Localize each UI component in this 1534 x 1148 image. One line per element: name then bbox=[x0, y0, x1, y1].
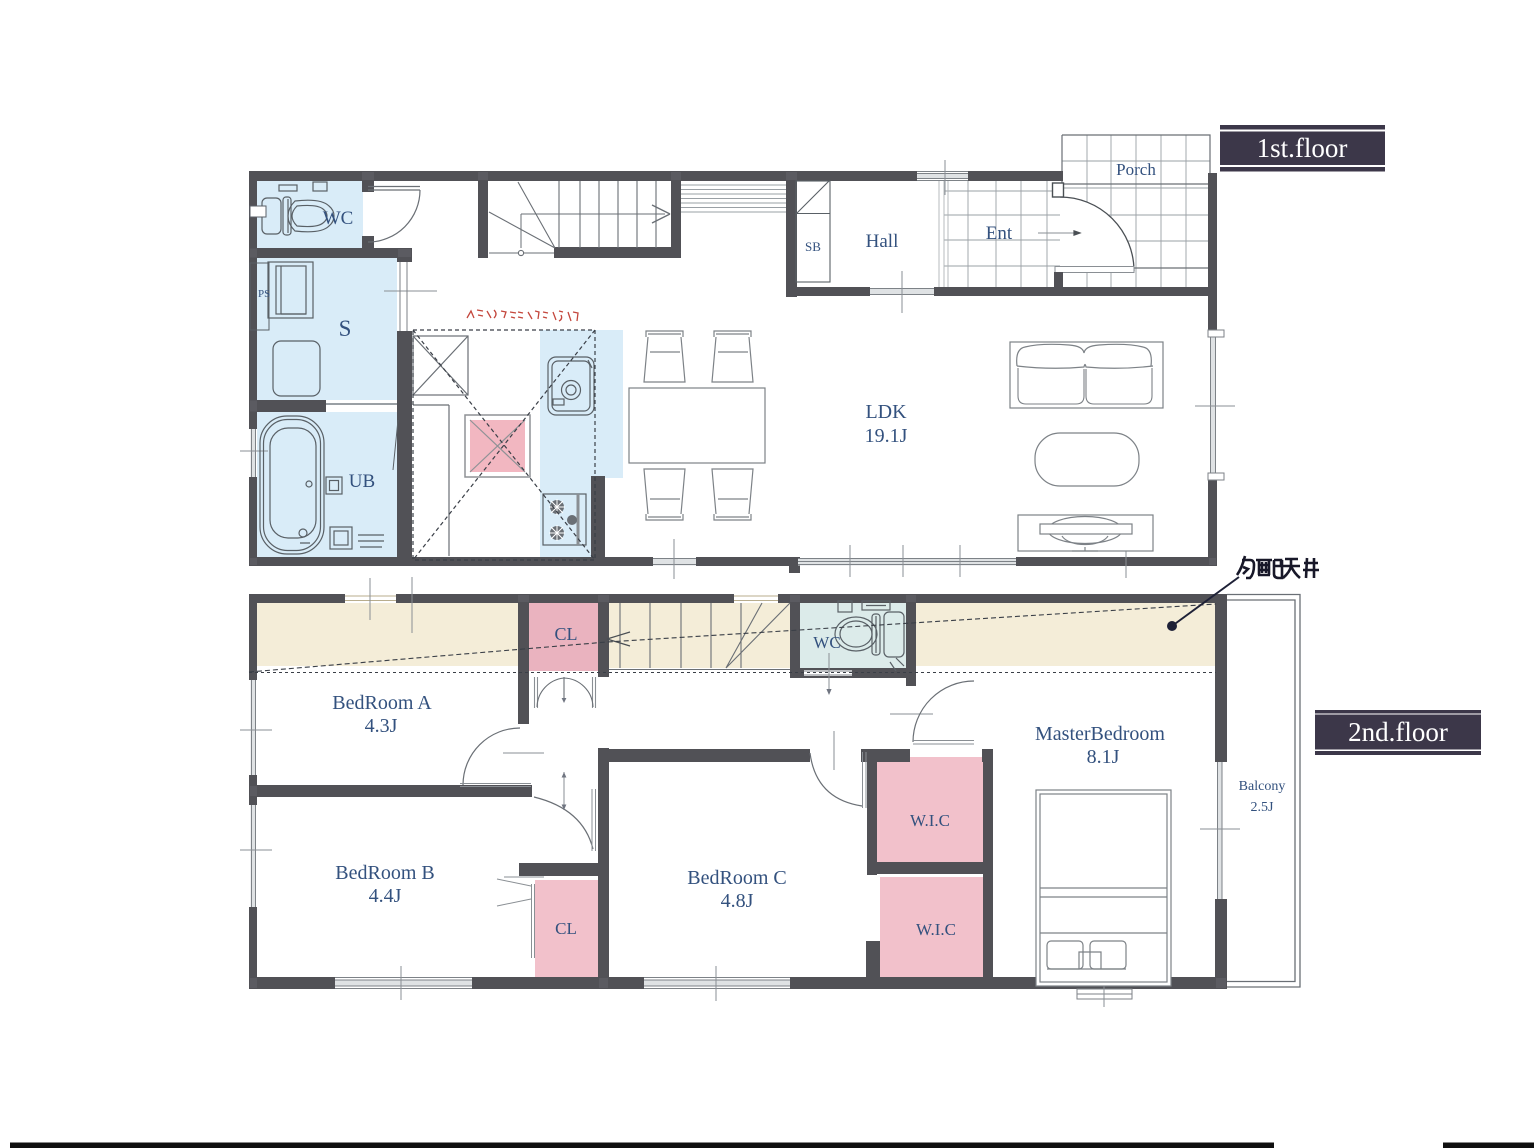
svg-text:2nd.floor: 2nd.floor bbox=[1348, 717, 1448, 747]
svg-text:CL: CL bbox=[554, 624, 577, 644]
svg-text:W.I.C: W.I.C bbox=[910, 811, 950, 830]
svg-text:BedRoom C: BedRoom C bbox=[687, 867, 786, 889]
svg-text:Hall: Hall bbox=[866, 231, 899, 252]
svg-text:W.I.C: W.I.C bbox=[916, 920, 956, 939]
svg-text:Balcony: Balcony bbox=[1239, 779, 1286, 794]
svg-text:WC: WC bbox=[323, 208, 354, 229]
svg-text:BedRoom A: BedRoom A bbox=[332, 692, 432, 714]
svg-text:S: S bbox=[339, 316, 352, 341]
svg-text:PS: PS bbox=[258, 288, 270, 300]
svg-text:8.1J: 8.1J bbox=[1087, 746, 1120, 768]
svg-text:WC: WC bbox=[813, 633, 840, 652]
svg-text:Porch: Porch bbox=[1116, 160, 1156, 179]
svg-text:CL: CL bbox=[555, 919, 577, 938]
svg-text:LDK: LDK bbox=[865, 401, 907, 423]
svg-text:1st.floor: 1st.floor bbox=[1257, 133, 1348, 163]
svg-text:19.1J: 19.1J bbox=[865, 425, 908, 447]
svg-text:4.8J: 4.8J bbox=[721, 890, 754, 912]
svg-text:MasterBedroom: MasterBedroom bbox=[1035, 723, 1165, 745]
svg-text:4.3J: 4.3J bbox=[365, 715, 398, 737]
svg-text:2.5J: 2.5J bbox=[1251, 800, 1275, 815]
svg-text:BedRoom B: BedRoom B bbox=[335, 862, 434, 884]
svg-text:4.4J: 4.4J bbox=[369, 885, 402, 907]
svg-text:UB: UB bbox=[349, 471, 375, 492]
svg-text:SB: SB bbox=[805, 239, 821, 254]
svg-text:Ent: Ent bbox=[986, 223, 1013, 244]
